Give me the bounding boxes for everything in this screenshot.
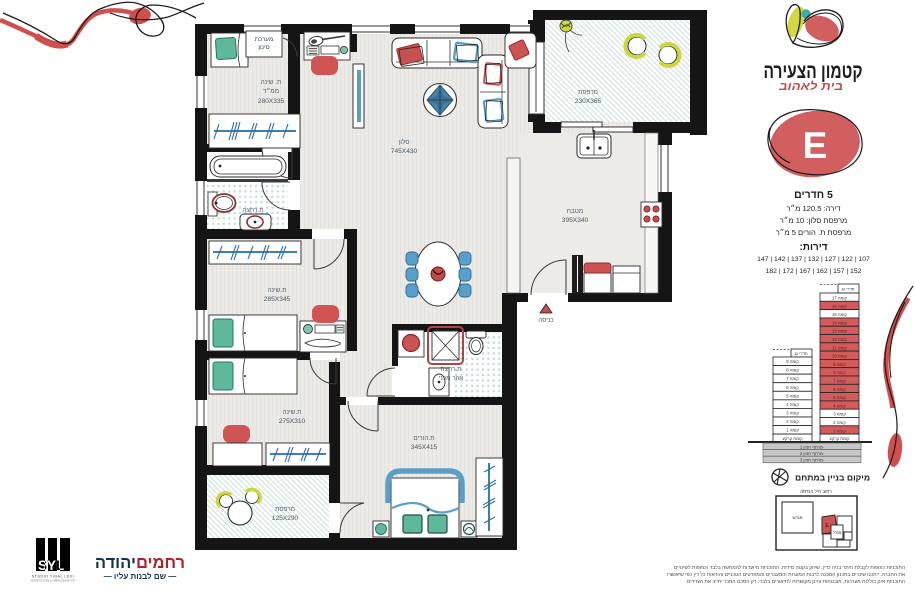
svg-text:ממ״ד: ממ״ד <box>263 88 279 95</box>
svg-text:רחמיםיהודה: רחמיםיהודה <box>95 554 185 572</box>
svg-text:קומה 12: קומה 12 <box>832 337 847 342</box>
svg-text:חדרי גג: חדרי גג <box>794 351 807 356</box>
svg-text:מגדל: מגדל <box>833 530 842 535</box>
svg-text:קומה 9: קומה 9 <box>833 362 846 367</box>
svg-text:קומה 17: קומה 17 <box>832 296 847 301</box>
svg-text:395X340: 395X340 <box>562 217 589 224</box>
svg-text:קטמון הצעירה: קטמון הצעירה <box>764 60 863 83</box>
svg-text:ת. שינה: ת. שינה <box>261 79 282 86</box>
svg-text:את החברה. ייתכנו שינויים בתכנו: את החברה. ייתכנו שינויים בתכנון המבנה לר… <box>667 571 906 578</box>
svg-text:קומה 3: קומה 3 <box>786 411 799 416</box>
svg-text:חדרי גג: חדרי גג <box>841 287 854 292</box>
svg-text:קומת קרקע: קומת קרקע <box>782 436 803 441</box>
svg-text:קומה 5: קומה 5 <box>833 395 846 400</box>
svg-text:קומה 2: קומה 2 <box>833 420 846 425</box>
svg-text:קומה 1: קומה 1 <box>833 428 846 433</box>
svg-text:קומה 8: קומה 8 <box>786 368 799 373</box>
svg-text:מרפסת: מרפסת <box>578 89 598 96</box>
svg-text:ת.שינה: ת.שינה <box>282 409 301 416</box>
svg-text:מגרש: מגרש <box>793 515 803 520</box>
svg-text:מערכת: מערכת <box>255 36 273 43</box>
svg-text:קומה 6: קומה 6 <box>833 387 846 392</box>
svg-text:סינון: סינון <box>258 44 269 51</box>
svg-text:מרתף חניון 3-: מרתף חניון 3- <box>800 458 825 463</box>
svg-text:ת.רחצה: ת.רחצה <box>440 366 461 373</box>
svg-text:מרתף חניון 1-: מרתף חניון 1- <box>800 444 825 449</box>
svg-text:ARCHITECTURE & URBAN DESIGN LT: ARCHITECTURE & URBAN DESIGN LTD <box>31 580 76 583</box>
svg-text:ת.רחצה: ת.רחצה <box>242 207 263 214</box>
svg-text:745X430: 745X430 <box>391 148 418 155</box>
svg-text:קומה 16: קומה 16 <box>832 304 847 309</box>
svg-text:קומה 13: קומה 13 <box>832 329 847 334</box>
svg-text:קומה 1: קומה 1 <box>786 428 799 433</box>
svg-text:מיקום בניין במתחם: מיקום בניין במתחם <box>795 473 870 483</box>
svg-text:ת.הורים: ת.הורים <box>413 435 434 442</box>
svg-text:קומה 8: קומה 8 <box>833 370 846 375</box>
svg-text:SYL: SYL <box>38 558 64 573</box>
svg-text:280X335: 280X335 <box>258 98 285 105</box>
svg-text:קומה 5: קומה 5 <box>786 393 799 398</box>
svg-text:קומה 6: קומה 6 <box>786 385 799 390</box>
svg-text:285X345: 285X345 <box>264 296 291 303</box>
svg-text:מטבח: מטבח <box>567 208 584 215</box>
svg-text:קומה 7: קומה 7 <box>786 376 799 381</box>
svg-text:קומה 7: קומה 7 <box>833 379 846 384</box>
svg-text:אזור מכני: אזור מכני <box>439 375 464 382</box>
svg-text:קומה 4: קומה 4 <box>786 402 799 407</box>
svg-text:קומה 3: קומה 3 <box>833 412 846 417</box>
svg-text:רחוב חיל הנדסה: רחוב חיל הנדסה <box>800 489 832 494</box>
svg-text:STUDIO YIGAL LEVI: STUDIO YIGAL LEVI <box>32 575 74 579</box>
svg-text:בית לאהוב: בית לאהוב <box>778 80 843 93</box>
svg-text:קומה 9: קומה 9 <box>786 359 799 364</box>
svg-text:סלון: סלון <box>399 138 410 146</box>
svg-text:קומה 14: קומה 14 <box>832 320 847 325</box>
svg-text:קומה 10: קומה 10 <box>832 354 847 359</box>
svg-text:230X365: 230X365 <box>575 98 602 105</box>
svg-text:ת.שינה: ת.שינה <box>267 287 286 294</box>
svg-text:קומת קרקע: קומת קרקע <box>829 436 850 441</box>
svg-text:התוכניות כפופות לקבלת היתר בני: התוכניות כפופות לקבלת היתר בניה כדין. שי… <box>674 564 905 571</box>
svg-text:התוכניות אינן כוללות מערכות, מ: התוכניות אינן כוללות מערכות, מובטחות והי… <box>687 578 905 585</box>
svg-text:— שם לבנות עליו —: — שם לבנות עליו — <box>104 572 177 581</box>
svg-text:כניסה: כניסה <box>538 317 554 324</box>
svg-text:קומה 11: קומה 11 <box>832 345 847 350</box>
svg-text:קומה 2: קומה 2 <box>786 419 799 424</box>
svg-text:מרפסת: מרפסת <box>275 506 295 513</box>
svg-text:קומה 15: קומה 15 <box>832 312 847 317</box>
svg-text:קומה 4: קומה 4 <box>833 403 846 408</box>
svg-text:345X415: 345X415 <box>411 444 438 451</box>
svg-text:275X310: 275X310 <box>279 418 306 425</box>
svg-text:E: E <box>803 125 828 166</box>
svg-text:125X290: 125X290 <box>272 515 299 522</box>
svg-text:מרתף חניון 2-: מרתף חניון 2- <box>800 451 825 456</box>
